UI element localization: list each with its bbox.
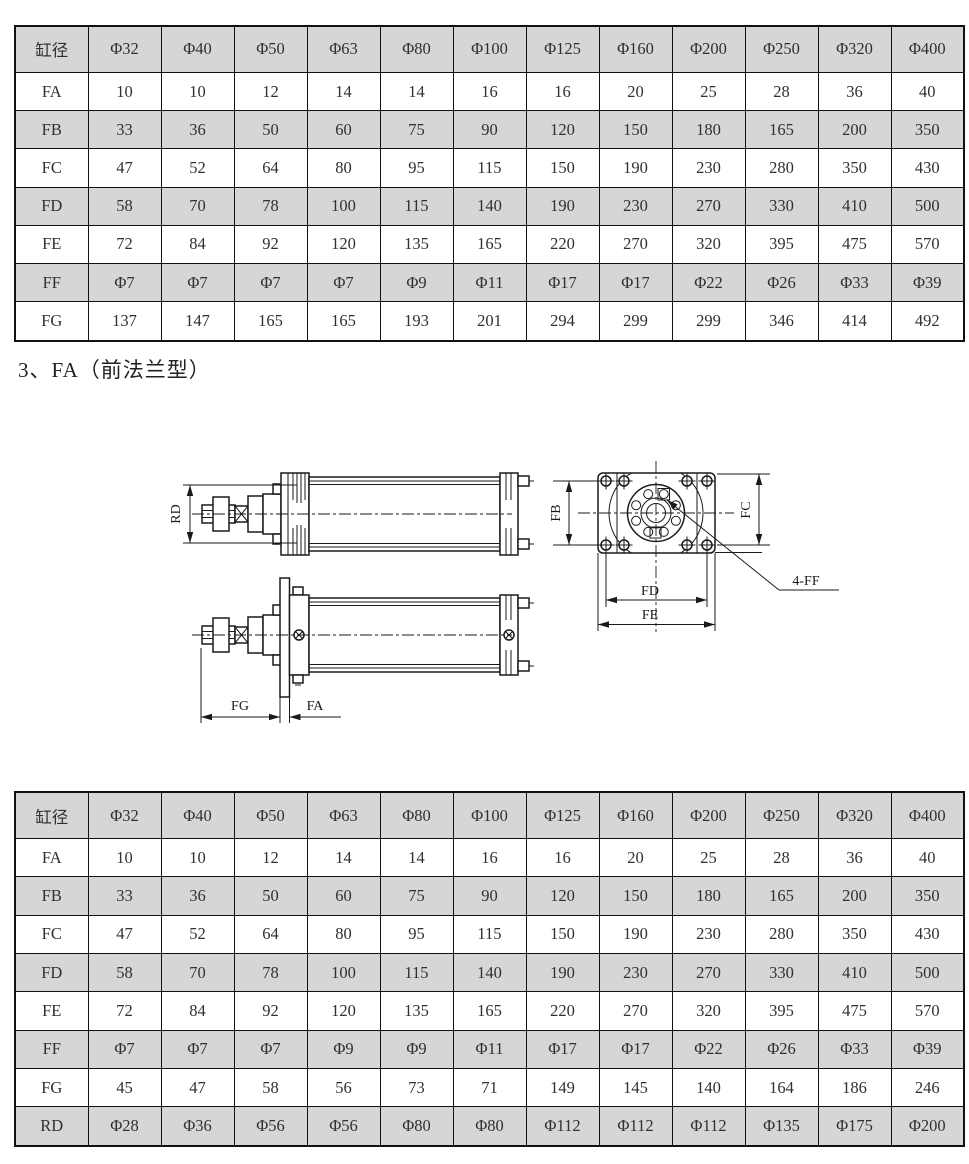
row-header-cell: FE <box>15 992 88 1030</box>
value-cell: 270 <box>599 225 672 263</box>
value-cell: Φ175 <box>818 1107 891 1146</box>
value-cell: Φ40 <box>161 26 234 72</box>
value-cell: 299 <box>599 302 672 341</box>
value-cell: Φ11 <box>453 264 526 302</box>
value-cell: 58 <box>88 187 161 225</box>
value-cell: 20 <box>599 839 672 877</box>
value-cell: Φ22 <box>672 1030 745 1068</box>
value-cell: 150 <box>599 877 672 915</box>
value-cell: 40 <box>891 839 964 877</box>
value-cell: 95 <box>380 915 453 953</box>
value-cell: Φ7 <box>234 264 307 302</box>
table-row: FA101012141416162025283640 <box>15 72 964 110</box>
value-cell: 14 <box>380 72 453 110</box>
value-cell: 115 <box>453 149 526 187</box>
value-cell: 28 <box>745 72 818 110</box>
row-header-cell: FB <box>15 877 88 915</box>
value-cell: 294 <box>526 302 599 341</box>
value-cell: 64 <box>234 915 307 953</box>
value-cell: Φ125 <box>526 26 599 72</box>
value-cell: Φ9 <box>380 1030 453 1068</box>
value-cell: Φ200 <box>672 26 745 72</box>
value-cell: 186 <box>818 1068 891 1106</box>
header-row: 缸径Φ32Φ40Φ50Φ63Φ80Φ100Φ125Φ160Φ200Φ250Φ32… <box>15 792 964 839</box>
value-cell: Φ125 <box>526 792 599 839</box>
row-header-cell: FG <box>15 1068 88 1106</box>
value-cell: 33 <box>88 111 161 149</box>
value-cell: 410 <box>818 187 891 225</box>
value-cell: 50 <box>234 111 307 149</box>
value-cell: 280 <box>745 915 818 953</box>
row-header-cell: FD <box>15 187 88 225</box>
value-cell: 10 <box>161 72 234 110</box>
value-cell: 475 <box>818 225 891 263</box>
front-flange-plate <box>280 578 290 697</box>
value-cell: 33 <box>88 877 161 915</box>
value-cell: 200 <box>818 877 891 915</box>
value-cell: 14 <box>380 839 453 877</box>
value-cell: Φ32 <box>88 26 161 72</box>
table-row: FC4752648095115150190230280350430 <box>15 915 964 953</box>
value-cell: Φ9 <box>380 264 453 302</box>
value-cell: Φ26 <box>745 1030 818 1068</box>
value-cell: 10 <box>88 72 161 110</box>
value-cell: 137 <box>88 302 161 341</box>
value-cell: 71 <box>453 1068 526 1106</box>
value-cell: Φ7 <box>88 1030 161 1068</box>
value-cell: Φ22 <box>672 264 745 302</box>
value-cell: Φ100 <box>453 792 526 839</box>
value-cell: 92 <box>234 992 307 1030</box>
value-cell: 350 <box>891 111 964 149</box>
value-cell: 190 <box>526 953 599 991</box>
value-cell: 149 <box>526 1068 599 1106</box>
value-cell: 36 <box>818 839 891 877</box>
value-cell: 270 <box>599 992 672 1030</box>
value-cell: 346 <box>745 302 818 341</box>
value-cell: 220 <box>526 225 599 263</box>
value-cell: Φ320 <box>818 792 891 839</box>
value-cell: Φ63 <box>307 792 380 839</box>
value-cell: Φ50 <box>234 26 307 72</box>
value-cell: 60 <box>307 111 380 149</box>
value-cell: 330 <box>745 953 818 991</box>
value-cell: Φ7 <box>307 264 380 302</box>
value-cell: Φ7 <box>161 1030 234 1068</box>
table-row: FA101012141416162025283640 <box>15 839 964 877</box>
value-cell: 165 <box>453 225 526 263</box>
value-cell: 165 <box>745 877 818 915</box>
value-cell: Φ112 <box>599 1107 672 1146</box>
flange-front-view: FB FC FD FE 4-FF <box>549 461 839 632</box>
value-cell: 25 <box>672 72 745 110</box>
value-cell: 330 <box>745 187 818 225</box>
value-cell: 120 <box>526 877 599 915</box>
value-cell: 395 <box>745 225 818 263</box>
value-cell: 16 <box>526 839 599 877</box>
value-cell: 64 <box>234 149 307 187</box>
row-header-cell: FF <box>15 1030 88 1068</box>
value-cell: 92 <box>234 225 307 263</box>
dim-label-fb: FB <box>549 504 564 521</box>
value-cell: 20 <box>599 72 672 110</box>
value-cell: 14 <box>307 72 380 110</box>
value-cell: 84 <box>161 992 234 1030</box>
value-cell: 36 <box>161 877 234 915</box>
value-cell: 90 <box>453 111 526 149</box>
value-cell: 350 <box>818 149 891 187</box>
cylinder-side-view: RD <box>169 473 534 555</box>
value-cell: 73 <box>380 1068 453 1106</box>
value-cell: 75 <box>380 877 453 915</box>
value-cell: 90 <box>453 877 526 915</box>
catalog-page: { "heading": "3、FA（前法兰型）", "colors": { "… <box>0 0 969 1164</box>
row-header-cell: FC <box>15 915 88 953</box>
value-cell: Φ112 <box>672 1107 745 1146</box>
value-cell: 180 <box>672 111 745 149</box>
value-cell: 570 <box>891 992 964 1030</box>
value-cell: Φ250 <box>745 26 818 72</box>
value-cell: 40 <box>891 72 964 110</box>
dimension-table-top: 缸径Φ32Φ40Φ50Φ63Φ80Φ100Φ125Φ160Φ200Φ250Φ32… <box>14 25 965 342</box>
value-cell: Φ200 <box>891 1107 964 1146</box>
dimension-table-bottom: 缸径Φ32Φ40Φ50Φ63Φ80Φ100Φ125Φ160Φ200Φ250Φ32… <box>14 791 965 1147</box>
value-cell: 100 <box>307 187 380 225</box>
value-cell: 80 <box>307 915 380 953</box>
technical-drawing-fa-front-flange: RD <box>0 440 969 740</box>
value-cell: 16 <box>453 72 526 110</box>
value-cell: 72 <box>88 225 161 263</box>
value-cell: Φ28 <box>88 1107 161 1146</box>
value-cell: 47 <box>88 915 161 953</box>
table-row: FE728492120135165220270320395475570 <box>15 992 964 1030</box>
value-cell: Φ17 <box>599 1030 672 1068</box>
value-cell: 120 <box>526 111 599 149</box>
value-cell: Φ80 <box>380 26 453 72</box>
value-cell: 60 <box>307 877 380 915</box>
value-cell: 115 <box>453 915 526 953</box>
row-header-cell: FG <box>15 302 88 341</box>
value-cell: Φ80 <box>453 1107 526 1146</box>
value-cell: 500 <box>891 953 964 991</box>
value-cell: 72 <box>88 992 161 1030</box>
value-cell: 410 <box>818 953 891 991</box>
value-cell: 270 <box>672 953 745 991</box>
value-cell: Φ250 <box>745 792 818 839</box>
value-cell: 10 <box>88 839 161 877</box>
value-cell: 45 <box>88 1068 161 1106</box>
value-cell: Φ160 <box>599 26 672 72</box>
value-cell: 150 <box>526 149 599 187</box>
value-cell: 475 <box>818 992 891 1030</box>
value-cell: 165 <box>453 992 526 1030</box>
value-cell: 120 <box>307 992 380 1030</box>
value-cell: 47 <box>88 149 161 187</box>
table-row: FG454758567371149145140164186246 <box>15 1068 964 1106</box>
value-cell: 14 <box>307 839 380 877</box>
value-cell: 115 <box>380 953 453 991</box>
value-cell: Φ17 <box>526 264 599 302</box>
value-cell: 180 <box>672 877 745 915</box>
value-cell: 320 <box>672 992 745 1030</box>
value-cell: 12 <box>234 72 307 110</box>
value-cell: Φ7 <box>161 264 234 302</box>
value-cell: 165 <box>234 302 307 341</box>
value-cell: 220 <box>526 992 599 1030</box>
value-cell: Φ33 <box>818 1030 891 1068</box>
value-cell: 395 <box>745 992 818 1030</box>
dim-label-fc: FC <box>739 501 754 518</box>
value-cell: 135 <box>380 225 453 263</box>
value-cell: Φ56 <box>234 1107 307 1146</box>
value-cell: Φ26 <box>745 264 818 302</box>
value-cell: Φ7 <box>88 264 161 302</box>
value-cell: 52 <box>161 149 234 187</box>
dim-label-fg: FG <box>231 699 249 714</box>
row-header-cell: FB <box>15 111 88 149</box>
value-cell: 190 <box>599 915 672 953</box>
value-cell: 120 <box>307 225 380 263</box>
value-cell: 115 <box>380 187 453 225</box>
value-cell: 430 <box>891 915 964 953</box>
value-cell: 280 <box>745 149 818 187</box>
value-cell: 16 <box>526 72 599 110</box>
dim-label-rd: RD <box>169 504 184 523</box>
value-cell: 52 <box>161 915 234 953</box>
value-cell: 135 <box>380 992 453 1030</box>
value-cell: 230 <box>672 915 745 953</box>
table-row: FE728492120135165220270320395475570 <box>15 225 964 263</box>
value-cell: 95 <box>380 149 453 187</box>
value-cell: 150 <box>599 111 672 149</box>
table-row: FB333650607590120150180165200350 <box>15 877 964 915</box>
value-cell: Φ7 <box>234 1030 307 1068</box>
value-cell: 190 <box>599 149 672 187</box>
value-cell: 430 <box>891 149 964 187</box>
value-cell: Φ33 <box>818 264 891 302</box>
value-cell: 16 <box>453 839 526 877</box>
row-header-cell: FA <box>15 72 88 110</box>
value-cell: 28 <box>745 839 818 877</box>
value-cell: 80 <box>307 149 380 187</box>
value-cell: 36 <box>161 111 234 149</box>
value-cell: Φ36 <box>161 1107 234 1146</box>
value-cell: 50 <box>234 877 307 915</box>
value-cell: 58 <box>234 1068 307 1106</box>
value-cell: 230 <box>599 187 672 225</box>
value-cell: 350 <box>891 877 964 915</box>
value-cell: Φ80 <box>380 1107 453 1146</box>
table-row: FD587078100115140190230270330410500 <box>15 953 964 991</box>
value-cell: 75 <box>380 111 453 149</box>
value-cell: 299 <box>672 302 745 341</box>
value-cell: 25 <box>672 839 745 877</box>
value-cell: 58 <box>88 953 161 991</box>
value-cell: 570 <box>891 225 964 263</box>
value-cell: 500 <box>891 187 964 225</box>
value-cell: Φ63 <box>307 26 380 72</box>
value-cell: 230 <box>599 953 672 991</box>
value-cell: 70 <box>161 953 234 991</box>
value-cell: 492 <box>891 302 964 341</box>
table-row: RDΦ28Φ36Φ56Φ56Φ80Φ80Φ112Φ112Φ112Φ135Φ175… <box>15 1107 964 1146</box>
table-row: FD587078100115140190230270330410500 <box>15 187 964 225</box>
row-header-cell: FE <box>15 225 88 263</box>
table-row: FFΦ7Φ7Φ7Φ9Φ9Φ11Φ17Φ17Φ22Φ26Φ33Φ39 <box>15 1030 964 1068</box>
row-header-cell: FA <box>15 839 88 877</box>
value-cell: 147 <box>161 302 234 341</box>
value-cell: 246 <box>891 1068 964 1106</box>
value-cell: 350 <box>818 915 891 953</box>
value-cell: 165 <box>745 111 818 149</box>
value-cell: 165 <box>307 302 380 341</box>
value-cell: 190 <box>526 187 599 225</box>
value-cell: Φ32 <box>88 792 161 839</box>
value-cell: 12 <box>234 839 307 877</box>
value-cell: Φ320 <box>818 26 891 72</box>
table-row: FB333650607590120150180165200350 <box>15 111 964 149</box>
cylinder-side-view-with-flange: FG FA <box>192 578 534 723</box>
row-header-cell: 缸径 <box>15 26 88 72</box>
value-cell: 140 <box>453 953 526 991</box>
value-cell: Φ160 <box>599 792 672 839</box>
value-cell: 140 <box>453 187 526 225</box>
value-cell: Φ112 <box>526 1107 599 1146</box>
value-cell: Φ11 <box>453 1030 526 1068</box>
value-cell: Φ17 <box>599 264 672 302</box>
value-cell: 140 <box>672 1068 745 1106</box>
table-row: FC4752648095115150190230280350430 <box>15 149 964 187</box>
row-header-cell: FD <box>15 953 88 991</box>
row-header-cell: 缸径 <box>15 792 88 839</box>
value-cell: Φ135 <box>745 1107 818 1146</box>
value-cell: 201 <box>453 302 526 341</box>
value-cell: 100 <box>307 953 380 991</box>
value-cell: Φ40 <box>161 792 234 839</box>
dim-label-fa: FA <box>307 699 325 714</box>
value-cell: 230 <box>672 149 745 187</box>
row-header-cell: FF <box>15 264 88 302</box>
value-cell: 78 <box>234 953 307 991</box>
value-cell: Φ400 <box>891 26 964 72</box>
value-cell: 193 <box>380 302 453 341</box>
row-header-cell: FC <box>15 149 88 187</box>
value-cell: 36 <box>818 72 891 110</box>
value-cell: 270 <box>672 187 745 225</box>
header-row: 缸径Φ32Φ40Φ50Φ63Φ80Φ100Φ125Φ160Φ200Φ250Φ32… <box>15 26 964 72</box>
value-cell: Φ100 <box>453 26 526 72</box>
dim-label-ff: 4-FF <box>792 574 819 589</box>
value-cell: Φ80 <box>380 792 453 839</box>
value-cell: Φ9 <box>307 1030 380 1068</box>
value-cell: 200 <box>818 111 891 149</box>
value-cell: 164 <box>745 1068 818 1106</box>
value-cell: Φ39 <box>891 264 964 302</box>
value-cell: 150 <box>526 915 599 953</box>
value-cell: 84 <box>161 225 234 263</box>
value-cell: 78 <box>234 187 307 225</box>
section-heading: 3、FA（前法兰型） <box>18 354 211 384</box>
value-cell: Φ200 <box>672 792 745 839</box>
value-cell: 320 <box>672 225 745 263</box>
value-cell: 145 <box>599 1068 672 1106</box>
table-row: FFΦ7Φ7Φ7Φ7Φ9Φ11Φ17Φ17Φ22Φ26Φ33Φ39 <box>15 264 964 302</box>
value-cell: 10 <box>161 839 234 877</box>
value-cell: Φ17 <box>526 1030 599 1068</box>
value-cell: 414 <box>818 302 891 341</box>
value-cell: Φ39 <box>891 1030 964 1068</box>
value-cell: 70 <box>161 187 234 225</box>
table-row: FG137147165165193201294299299346414492 <box>15 302 964 341</box>
row-header-cell: RD <box>15 1107 88 1146</box>
value-cell: Φ56 <box>307 1107 380 1146</box>
value-cell: 47 <box>161 1068 234 1106</box>
value-cell: 56 <box>307 1068 380 1106</box>
value-cell: Φ400 <box>891 792 964 839</box>
value-cell: Φ50 <box>234 792 307 839</box>
